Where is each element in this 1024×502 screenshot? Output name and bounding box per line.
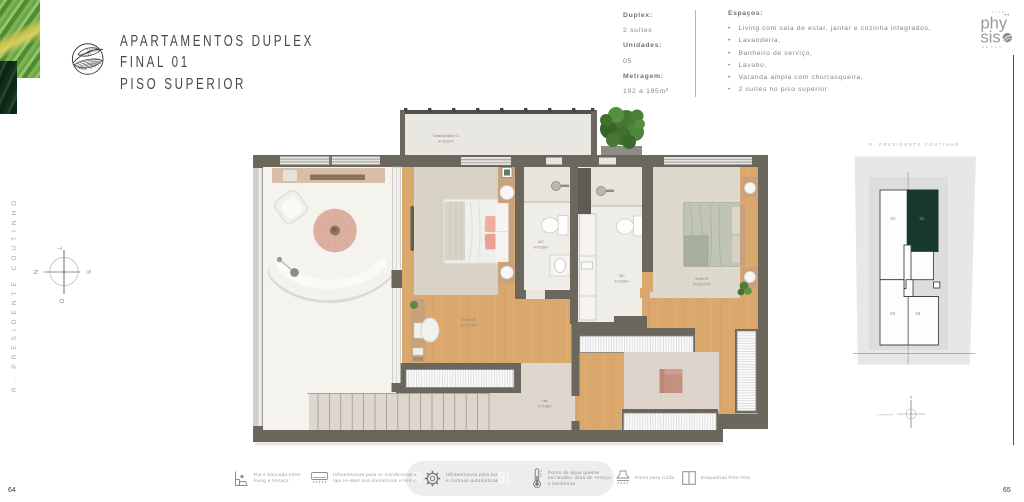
svg-text:Suíte 02: Suíte 02 <box>462 318 475 322</box>
svg-text:A=22,07m²: A=22,07m² <box>693 283 711 287</box>
svg-text:BEACH: BEACH <box>982 45 1004 49</box>
svg-text:LITE: LITE <box>992 10 1006 14</box>
svg-text:02: 02 <box>890 216 896 221</box>
svg-text:A=2,98m²: A=2,98m² <box>538 404 554 408</box>
svg-text:04: 04 <box>915 311 921 316</box>
svg-text:R. PRESIDENTE: R. PRESIDENTE <box>877 415 894 417</box>
svg-text:A=17,17m²: A=17,17m² <box>460 324 478 328</box>
svg-text:WC: WC <box>619 274 625 278</box>
svg-text:sis: sis <box>981 29 1001 47</box>
svg-text:Hall: Hall <box>542 399 548 403</box>
svg-text:S: S <box>87 270 93 274</box>
svg-text:N: N <box>34 270 40 274</box>
svg-text:01: 01 <box>919 216 925 221</box>
svg-text:L: L <box>58 246 64 250</box>
svg-text:A=5,06m²: A=5,06m² <box>534 245 550 249</box>
svg-text:Varanda Apto 01: Varanda Apto 01 <box>433 134 460 138</box>
svg-text:WC: WC <box>538 240 544 244</box>
svg-text:R. PRESIDENTE COUTINHO: R. PRESIDENTE COUTINHO <box>869 142 960 147</box>
svg-text:A=5,00m²: A=5,00m² <box>438 140 454 144</box>
svg-text:Suíte 01: Suíte 01 <box>695 277 708 281</box>
svg-text:A=3,69m²: A=3,69m² <box>615 279 631 283</box>
svg-text:O: O <box>60 298 66 303</box>
svg-text:N: N <box>910 396 913 400</box>
svg-text:03: 03 <box>890 311 896 316</box>
